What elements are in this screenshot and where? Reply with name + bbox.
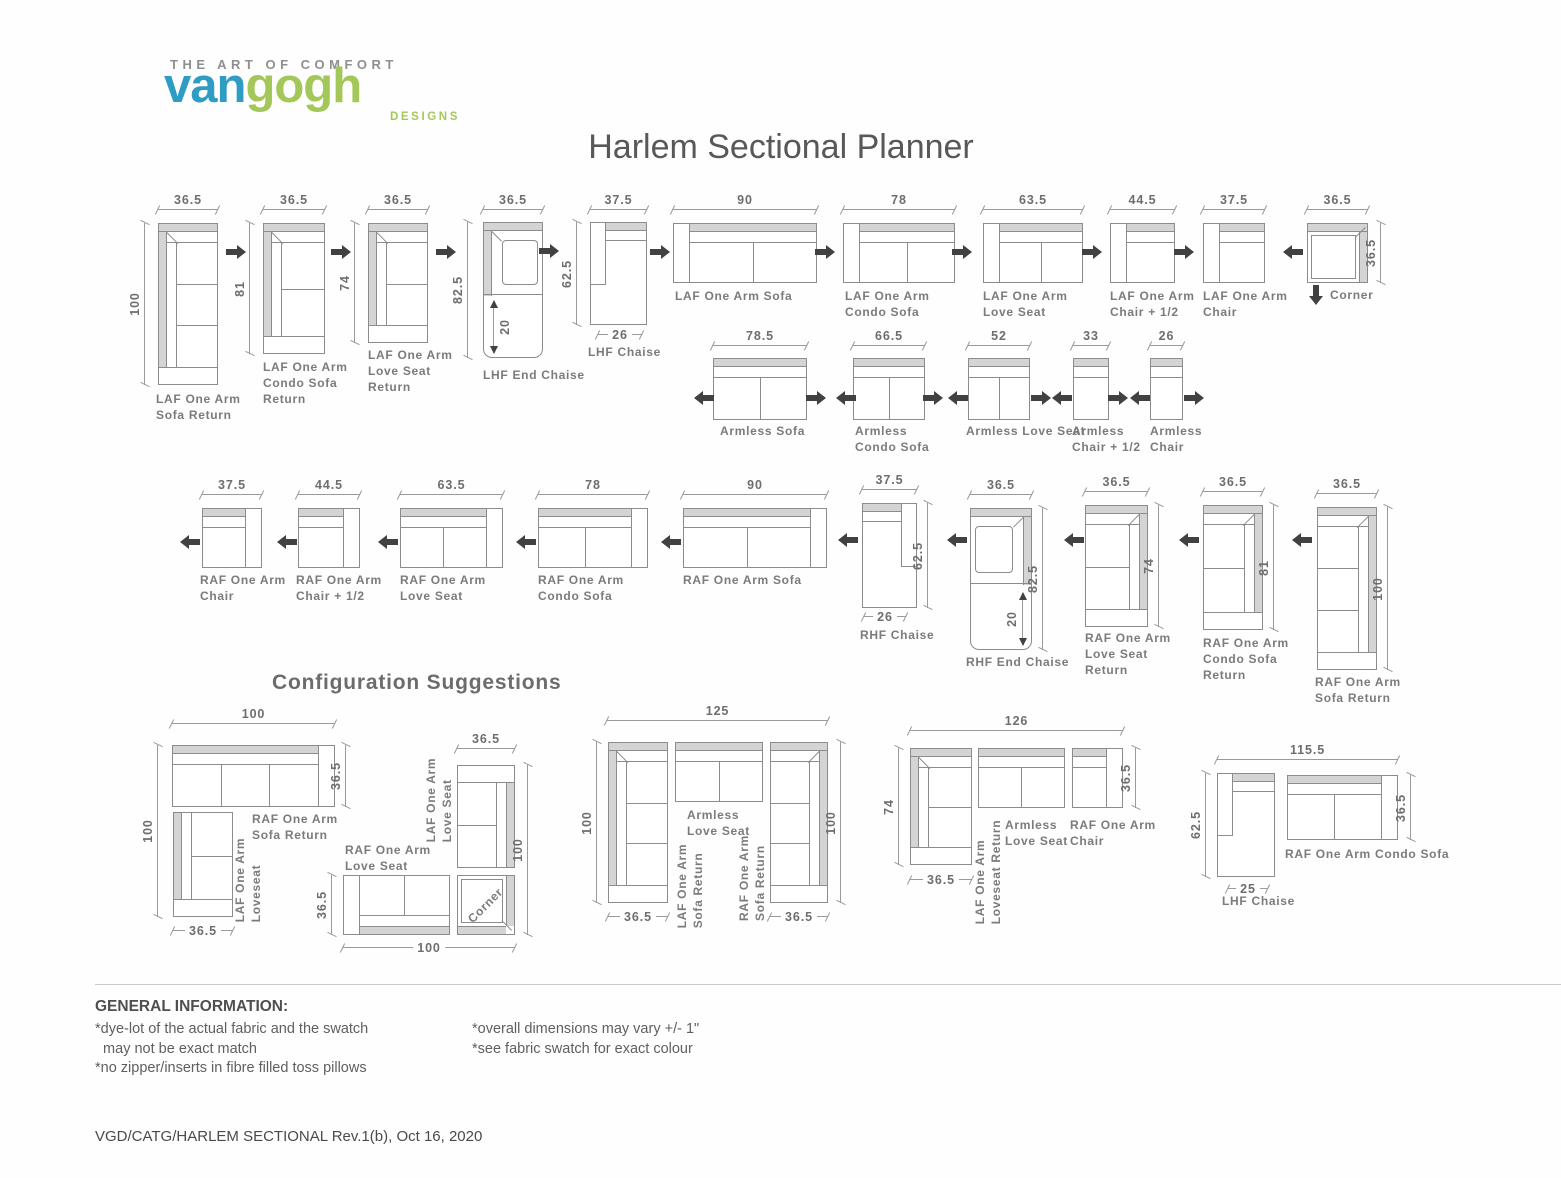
arrow-tail bbox=[806, 395, 817, 401]
piece-label: LHF Chaise bbox=[1222, 894, 1295, 910]
dimension-line: 62.5 bbox=[1205, 773, 1206, 877]
dimension-line: 36.5 bbox=[1307, 209, 1368, 210]
back-band bbox=[714, 359, 806, 367]
laf-one-arm-sofa-return bbox=[158, 223, 218, 385]
dim-tick bbox=[572, 322, 581, 327]
laf-one-arm-love-seat bbox=[983, 223, 1083, 283]
dim-arrowhead-down bbox=[1019, 638, 1027, 646]
dimension-value: 90 bbox=[737, 193, 753, 207]
seat-divider bbox=[1318, 610, 1358, 611]
dim-tick bbox=[894, 745, 903, 750]
back-band-side bbox=[609, 751, 617, 886]
dimension-line: 26 bbox=[864, 616, 906, 617]
right-arrow-icon bbox=[538, 244, 560, 258]
dim-tick bbox=[332, 719, 337, 728]
arm-rest bbox=[1218, 774, 1233, 836]
arrow-head bbox=[1052, 391, 1061, 405]
back-band bbox=[484, 223, 542, 231]
arrow-tail bbox=[1188, 537, 1199, 543]
piece-label: LAF One Arm Sofa Return bbox=[675, 844, 707, 929]
front-rail bbox=[458, 782, 514, 783]
seat-divider bbox=[1204, 568, 1244, 569]
seat-divider bbox=[889, 378, 890, 419]
dimension-line: 36.5 bbox=[770, 916, 828, 917]
seat-divider bbox=[929, 807, 971, 808]
dimension-line: 90 bbox=[683, 494, 827, 495]
arrow-tail bbox=[650, 249, 661, 255]
piece-label: RAF One Arm Condo Sofa bbox=[1285, 847, 1449, 863]
dim-tick bbox=[824, 490, 829, 499]
right-arrow-icon bbox=[435, 245, 457, 259]
dimension-value: 100 bbox=[242, 707, 266, 721]
dim-tick bbox=[170, 926, 175, 935]
seat-divider bbox=[585, 528, 586, 567]
dim-tick bbox=[341, 804, 350, 809]
back-band-side bbox=[484, 231, 492, 296]
dim-tick bbox=[1214, 755, 1219, 764]
left-arrow-icon bbox=[946, 533, 968, 547]
piece-label: RAF One Arm Love Seat bbox=[345, 843, 431, 875]
dim-tick bbox=[1365, 205, 1370, 214]
back-band bbox=[979, 749, 1064, 757]
dimension-value: 33 bbox=[1083, 329, 1099, 343]
arrow-tail bbox=[286, 539, 297, 545]
miter-line bbox=[491, 231, 502, 242]
arrow-tail bbox=[1061, 395, 1072, 401]
arrow-head bbox=[1195, 391, 1204, 405]
front-rail bbox=[264, 336, 324, 337]
piece-label: RAF One Arm Chair bbox=[1070, 818, 1156, 850]
arm-rest bbox=[1204, 224, 1220, 282]
dim-tick bbox=[1269, 627, 1278, 632]
dim-tick bbox=[1225, 884, 1230, 893]
front-rail bbox=[1086, 609, 1147, 610]
right-arrow-icon bbox=[1081, 245, 1103, 259]
back-cushion bbox=[1288, 785, 1381, 795]
piece-label: RAF One Arm Sofa Return bbox=[737, 835, 769, 921]
seat-divider bbox=[1334, 795, 1335, 839]
dim-tick bbox=[1106, 341, 1111, 350]
laf-one-arm-sofa bbox=[673, 223, 817, 283]
back-cushion-side bbox=[1358, 527, 1367, 653]
dimension-line: 36.5 bbox=[263, 209, 325, 210]
dim-tick bbox=[592, 900, 601, 905]
seat-divider bbox=[771, 843, 809, 844]
dim-tick bbox=[1080, 205, 1085, 214]
seat-cushion bbox=[502, 240, 538, 285]
laf-one-arm-condo-sofa-return bbox=[263, 223, 325, 354]
dimension-line: 74 bbox=[898, 748, 899, 865]
back-cushion bbox=[1073, 758, 1106, 768]
piece-label: Armless Chair + 1/2 bbox=[1072, 424, 1141, 456]
back-cushion-side bbox=[273, 243, 282, 337]
lhf-chaise bbox=[590, 222, 647, 325]
left-arrow-icon bbox=[660, 535, 682, 549]
dimension-value: 100 bbox=[128, 292, 142, 316]
dim-tick bbox=[1314, 489, 1319, 498]
arrow-head bbox=[1119, 391, 1128, 405]
arrow-head bbox=[342, 245, 351, 259]
dimension-value: 74 bbox=[882, 799, 896, 815]
back-band bbox=[684, 509, 810, 517]
dim-tick bbox=[1027, 341, 1032, 350]
dim-tick bbox=[665, 912, 670, 921]
arrow-head bbox=[1185, 245, 1194, 259]
back-band bbox=[1233, 774, 1274, 782]
arm-rest bbox=[245, 509, 261, 567]
dim-tick bbox=[840, 205, 845, 214]
dim-arrowhead-down bbox=[490, 346, 498, 354]
dimension-value: 26 bbox=[1159, 329, 1175, 343]
dim-tick bbox=[1269, 502, 1278, 507]
piece-label: Armless Sofa bbox=[720, 424, 805, 440]
dimension-value: 36.5 bbox=[329, 762, 343, 790]
raf-one-arm-chair-half bbox=[298, 508, 360, 568]
dimension-line: 90 bbox=[673, 209, 817, 210]
back-band bbox=[299, 509, 343, 517]
dimension-line: 100 bbox=[1387, 507, 1388, 670]
arrow-head bbox=[277, 535, 286, 549]
dim-tick bbox=[295, 490, 300, 499]
dim-tick bbox=[836, 739, 845, 744]
dim-tick bbox=[425, 205, 430, 214]
rhf-chaise bbox=[862, 503, 917, 608]
dimension-value: 36.5 bbox=[781, 910, 817, 924]
dim-tick bbox=[1131, 805, 1140, 810]
raf-one-arm-sofa bbox=[683, 508, 827, 568]
dimension-value: 36.5 bbox=[185, 924, 221, 938]
dim-tick bbox=[397, 490, 402, 499]
dim-tick bbox=[350, 220, 359, 225]
piece-label: LHF End Chaise bbox=[483, 368, 585, 384]
dim-tick bbox=[1147, 341, 1152, 350]
dim-tick bbox=[463, 219, 472, 224]
dim-tick bbox=[923, 500, 932, 505]
dim-tick bbox=[230, 926, 235, 935]
back-band bbox=[606, 223, 646, 231]
back-band bbox=[1073, 749, 1106, 757]
config-suggestions-heading: Configuration Suggestions bbox=[272, 671, 561, 695]
seat-divider bbox=[907, 243, 908, 282]
config3-raf-sofa-return bbox=[770, 742, 828, 903]
dim-tick bbox=[1260, 487, 1265, 496]
dim-tick bbox=[825, 716, 830, 725]
armless-chair bbox=[1150, 358, 1183, 420]
dim-tick bbox=[357, 490, 362, 499]
dim-tick bbox=[1082, 487, 1087, 496]
dimension-line: 26 bbox=[598, 334, 642, 335]
dimension-value: 74 bbox=[1142, 558, 1156, 574]
dimension-line: 81 bbox=[249, 223, 250, 354]
back-cushion-side bbox=[378, 243, 387, 326]
back-band bbox=[969, 359, 1029, 367]
piece-label: RAF One Arm Chair + 1/2 bbox=[296, 573, 382, 605]
front-rail bbox=[159, 367, 217, 368]
arm-rest bbox=[1111, 224, 1127, 282]
info-line: may not be exact match bbox=[95, 1041, 257, 1057]
config4-armless-love-seat bbox=[978, 748, 1065, 808]
dim-tick bbox=[512, 744, 517, 753]
dim-tick bbox=[350, 340, 359, 345]
piece-label: Armless Condo Sofa bbox=[855, 424, 929, 456]
config5-lhf-chaise bbox=[1217, 773, 1275, 877]
arrow-head bbox=[237, 245, 246, 259]
arrow-tail bbox=[952, 249, 963, 255]
dimension-value: 100 bbox=[141, 819, 155, 843]
dimension-value: 126 bbox=[1005, 714, 1029, 728]
divider-rule bbox=[95, 984, 1561, 985]
back-band bbox=[690, 224, 816, 232]
back-band-side bbox=[264, 232, 272, 337]
arrow-tail bbox=[815, 249, 826, 255]
seat-divider bbox=[1021, 768, 1022, 807]
dim-tick bbox=[952, 205, 957, 214]
left-arrow-icon bbox=[1129, 391, 1151, 405]
dim-tick bbox=[523, 762, 532, 767]
dimension-value: 82.5 bbox=[451, 276, 465, 304]
back-cushion bbox=[863, 513, 901, 522]
corner-piece bbox=[1307, 223, 1368, 283]
dimension-line: 36.5 bbox=[457, 748, 515, 749]
dimension-line: 100 bbox=[343, 947, 515, 948]
left-arrow-icon bbox=[693, 391, 715, 405]
dimension-line: 36.5 bbox=[1380, 223, 1381, 283]
arm-rest bbox=[344, 876, 360, 934]
dimension-value: 52 bbox=[991, 329, 1007, 343]
laf-one-arm-chair-half bbox=[1110, 223, 1175, 283]
arrow-head bbox=[817, 391, 826, 405]
dim-tick bbox=[903, 612, 908, 621]
config1-laf-loveseat bbox=[173, 812, 233, 917]
arm-rest bbox=[591, 223, 606, 285]
dimension-line: 74 bbox=[354, 223, 355, 343]
dimension-line: 25 bbox=[1228, 888, 1268, 889]
right-arrow-icon bbox=[1183, 391, 1205, 405]
arrow-head bbox=[1309, 296, 1323, 305]
dimension-line: 74 bbox=[1158, 505, 1159, 627]
back-band bbox=[860, 224, 954, 232]
arrow-tail bbox=[1174, 249, 1185, 255]
config2-raf-love-seat bbox=[343, 875, 450, 935]
dimension-line: 37.5 bbox=[862, 489, 917, 490]
arrow-tail bbox=[189, 539, 200, 545]
left-arrow-icon bbox=[179, 535, 201, 549]
back-band bbox=[173, 746, 318, 754]
seat-divider bbox=[443, 528, 444, 567]
arrow-tail bbox=[847, 537, 858, 543]
info-line: *see fabric swatch for exact colour bbox=[472, 1041, 693, 1057]
dimension-line: 78 bbox=[843, 209, 955, 210]
back-band bbox=[676, 743, 762, 751]
dimension-value: 125 bbox=[706, 704, 730, 718]
left-arrow-icon bbox=[947, 391, 969, 405]
dimension-value: 44.5 bbox=[315, 478, 343, 492]
armless-condo-sofa bbox=[853, 358, 925, 420]
right-arrow-icon bbox=[814, 245, 836, 259]
raf-one-arm-condo-sofa-return bbox=[1203, 505, 1263, 630]
arrow-head bbox=[963, 245, 972, 259]
dim-arrowhead-up bbox=[490, 300, 498, 308]
dim-tick bbox=[1395, 755, 1400, 764]
seat-divider bbox=[269, 765, 270, 806]
dim-tick bbox=[1265, 884, 1270, 893]
dim-tick bbox=[215, 205, 220, 214]
dimension-line: 78.5 bbox=[713, 345, 807, 346]
piece-label: RAF One Arm Love Seat bbox=[400, 573, 486, 605]
arrow-head bbox=[516, 535, 525, 549]
dim-tick bbox=[140, 382, 149, 387]
dim-tick bbox=[155, 205, 160, 214]
dim-tick bbox=[1374, 489, 1379, 498]
arrow-tail bbox=[436, 249, 447, 255]
dimension-value: 100 bbox=[1371, 577, 1385, 601]
raf-one-arm-sofa-return bbox=[1317, 507, 1377, 670]
dimension-value: 36.5 bbox=[499, 193, 527, 207]
dim-tick bbox=[836, 900, 845, 905]
seat-divider bbox=[999, 378, 1000, 419]
back-cushion bbox=[606, 232, 646, 241]
dim-tick bbox=[605, 912, 610, 921]
piece-label: Armless Love Seat bbox=[966, 424, 1085, 440]
dimension-line: 37.5 bbox=[590, 209, 647, 210]
dimension-line: 63.5 bbox=[400, 494, 503, 495]
right-arrow-icon bbox=[922, 391, 944, 405]
dimension-value: 63.5 bbox=[438, 478, 466, 492]
dim-tick bbox=[850, 341, 855, 350]
piece-label: RAF One Arm Chair bbox=[200, 573, 286, 605]
back-cushion-side bbox=[809, 762, 818, 886]
dimension-line: 36.5 bbox=[1203, 491, 1263, 492]
seat-divider bbox=[404, 876, 405, 915]
back-band bbox=[1074, 359, 1108, 367]
arm-rest bbox=[343, 509, 359, 567]
config5-raf-condo-sofa bbox=[1287, 775, 1398, 840]
arrow-head bbox=[948, 391, 957, 405]
back-cushion bbox=[1151, 368, 1182, 378]
laf-one-arm-love-seat-return bbox=[368, 223, 428, 343]
seat-divider bbox=[1086, 567, 1129, 568]
dim-tick bbox=[645, 490, 650, 499]
arrow-head bbox=[180, 535, 189, 549]
info-line: *no zipper/inserts in fibre filled toss … bbox=[95, 1060, 367, 1076]
left-arrow-icon bbox=[835, 391, 857, 405]
dim-tick bbox=[1038, 647, 1047, 652]
armless-sofa bbox=[713, 358, 807, 420]
dim-tick bbox=[454, 744, 459, 753]
dim-tick bbox=[1172, 205, 1177, 214]
back-band bbox=[1000, 224, 1082, 232]
dimension-value: 26 bbox=[873, 610, 897, 624]
dim-tick bbox=[639, 330, 644, 339]
dimension-value: 81 bbox=[233, 281, 247, 297]
dim-tick bbox=[322, 205, 327, 214]
dim-tick bbox=[859, 485, 864, 494]
config1-raf-sofa-return bbox=[172, 745, 335, 807]
dim-tick bbox=[1304, 205, 1309, 214]
left-arrow-icon bbox=[1051, 391, 1073, 405]
raf-one-arm-love-seat bbox=[400, 508, 503, 568]
dimension-value: 100 bbox=[824, 811, 838, 835]
arrow-head bbox=[836, 391, 845, 405]
arm-rest bbox=[984, 224, 1000, 282]
dimension-value: 44.5 bbox=[1129, 193, 1157, 207]
seat-divider bbox=[719, 762, 720, 801]
seat-divider bbox=[771, 803, 809, 804]
arrow-tail bbox=[1301, 537, 1312, 543]
piece-label: LHF Chaise bbox=[588, 345, 661, 361]
dim-tick bbox=[922, 341, 927, 350]
dimension-line: 37.5 bbox=[1203, 209, 1265, 210]
dimension-line: 100 bbox=[172, 723, 335, 724]
back-cushion-side bbox=[183, 813, 192, 900]
dim-tick bbox=[1201, 770, 1210, 775]
dimension-value: 37.5 bbox=[1220, 193, 1248, 207]
arrow-head bbox=[838, 533, 847, 547]
dimension-value: 100 bbox=[511, 838, 525, 862]
dim-tick bbox=[825, 912, 830, 921]
back-band bbox=[1220, 224, 1264, 232]
right-arrow-icon bbox=[649, 245, 671, 259]
dimension-value: 36.5 bbox=[315, 891, 329, 919]
back-band bbox=[1127, 224, 1174, 232]
dimension-line: 36.5 bbox=[910, 879, 972, 880]
dim-tick bbox=[572, 219, 581, 224]
back-cushion bbox=[969, 368, 1029, 378]
piece-label: RAF One Arm Love Seat Return bbox=[1085, 631, 1171, 678]
dim-tick bbox=[980, 205, 985, 214]
raf-one-arm-love-seat-return bbox=[1085, 505, 1148, 627]
arrow-tail bbox=[845, 395, 856, 401]
piece-label: LAF One Arm Loveseat bbox=[233, 838, 265, 923]
seat-front-line bbox=[971, 583, 1031, 584]
front-rail bbox=[1318, 652, 1376, 653]
dimension-line: 44.5 bbox=[298, 494, 360, 495]
dim-tick bbox=[1029, 490, 1034, 499]
back-cushion bbox=[854, 368, 924, 378]
arrow-head bbox=[378, 535, 387, 549]
armless-chair-half bbox=[1073, 358, 1109, 420]
arrow-head bbox=[1042, 391, 1051, 405]
back-band bbox=[1308, 224, 1367, 232]
dimension-value: 115.5 bbox=[1290, 743, 1325, 757]
dimension-line: 100 bbox=[840, 742, 841, 903]
back-cushion bbox=[860, 233, 954, 243]
general-info-heading: GENERAL INFORMATION: bbox=[95, 998, 288, 1016]
dimension-value: 100 bbox=[413, 941, 445, 955]
dimension-value: 78 bbox=[585, 478, 601, 492]
dimension-line: 82.5 bbox=[467, 222, 468, 358]
dimension-line: 36.5 bbox=[608, 916, 668, 917]
back-band bbox=[159, 224, 217, 232]
back-band bbox=[863, 504, 901, 512]
back-cushion bbox=[690, 233, 816, 243]
arrow-head bbox=[694, 391, 703, 405]
front-rail bbox=[1204, 612, 1262, 613]
back-cushion bbox=[1000, 233, 1082, 243]
dim-tick bbox=[1154, 502, 1163, 507]
dimension-line: 52 bbox=[968, 345, 1030, 346]
dim-tick bbox=[1406, 772, 1415, 777]
arrow-head bbox=[1064, 533, 1073, 547]
arrow-tail bbox=[525, 539, 536, 545]
dimension-value: 82.5 bbox=[1026, 565, 1040, 593]
back-cushion bbox=[979, 758, 1064, 768]
left-arrow-icon bbox=[515, 535, 537, 549]
arrow-tail bbox=[956, 537, 967, 543]
config4-raf-chair bbox=[1072, 748, 1123, 808]
seat-divider bbox=[760, 378, 761, 419]
dim-tick bbox=[894, 862, 903, 867]
